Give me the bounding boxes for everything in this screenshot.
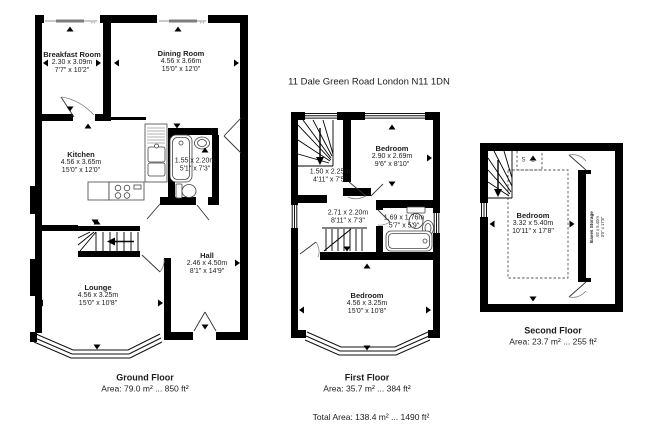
- room-name: Bedroom: [512, 211, 554, 220]
- room-imperial: 3'0" x 17'8": [600, 211, 605, 243]
- stove-icon: [88, 182, 144, 200]
- property-address: 11 Dale Green Road London N11 1DN: [288, 76, 450, 87]
- room-imperial: 4'11" x 7'5": [310, 177, 350, 185]
- room-name: Eaves Storage: [589, 211, 595, 243]
- skylight-label: S L: [521, 157, 536, 164]
- window-slide-icon: ↔: [199, 19, 206, 26]
- room-label-bedroom-rear: Bedroom 2.90 x 2.69m 9'6" x 8'10": [372, 144, 412, 170]
- room-metric: 4.56 x 3.66m: [158, 58, 205, 66]
- room-metric: 2.90 x 2.69m: [372, 153, 412, 161]
- room-label-hall: Hall 2.46 x 4.50m 8'1" x 14'9": [187, 251, 227, 277]
- window-slide-icon: ↔: [90, 19, 97, 26]
- room-metric: 1.55 x 2.20m: [175, 158, 215, 166]
- first-floor-caption: First Floor Area: 35.7 m² ... 384 ft²: [323, 373, 410, 394]
- room-metric: 1.69 x 1.76m: [384, 215, 424, 223]
- room-imperial: 15'0" x 10'8": [78, 301, 118, 309]
- room-label-first-bathroom: 1.69 x 1.76m 5'7" x 5'9": [384, 215, 424, 232]
- room-metric: 4.56 x 3.25m: [78, 292, 118, 300]
- first-stairs-icon: [298, 120, 367, 251]
- floor-name: Ground Floor: [101, 373, 188, 384]
- room-imperial: 5'1" x 7'3": [175, 166, 215, 174]
- room-imperial: 8'1" x 14'9": [187, 269, 227, 277]
- room-metric: 1.50 x 2.25m: [310, 169, 350, 177]
- room-imperial: 15'0" x 12'0": [61, 168, 101, 176]
- room-label-breakfast: Breakfast Room 2.30 x 3.09m 7'7" x 10'2": [43, 50, 101, 76]
- room-metric: 2.30 x 3.09m: [43, 59, 101, 67]
- room-metric: 3.32 x 5.40m: [512, 220, 554, 228]
- room-imperial: 8'11" x 7'3": [328, 218, 368, 226]
- room-label-lounge: Lounge 4.56 x 3.25m 15'0" x 10'8": [78, 283, 118, 309]
- room-label-inner-room: 2.71 x 2.20m 8'11" x 7'3": [328, 210, 368, 227]
- room-name: Lounge: [78, 283, 118, 292]
- room-metric: 2.46 x 4.50m: [187, 260, 227, 268]
- room-label-landing: 1.50 x 2.25m 4'11" x 7'5": [310, 169, 350, 186]
- room-imperial: 9'6" x 8'10": [372, 162, 412, 170]
- second-windows: [482, 203, 487, 217]
- floor-area: Area: 79.0 m² ... 850 ft²: [101, 383, 188, 393]
- kitchen-sink-unit-icon: [145, 124, 167, 182]
- room-metric: 4.56 x 3.65m: [61, 159, 101, 167]
- second-floor-caption: Second Floor Area: 23.7 m² ... 255 ft²: [509, 326, 596, 347]
- bathtub-icon: [386, 231, 432, 251]
- toilet-icon: [176, 184, 196, 198]
- ground-floor-caption: Ground Floor Area: 79.0 m² ... 850 ft²: [101, 373, 188, 394]
- room-label-second-bedroom: Bedroom 3.32 x 5.40m 10'11" x 17'8": [512, 211, 554, 237]
- room-imperial: 15'0" x 12'0": [158, 67, 205, 75]
- room-name: Dining Room: [158, 49, 205, 58]
- total-area: Total Area: 138.4 m² ... 1490 ft²: [313, 412, 430, 422]
- room-label-ground-bathroom: 1.55 x 2.20m 5'1" x 7'3": [175, 158, 215, 175]
- floorplan-canvas: ↔ ↔: [0, 0, 650, 433]
- room-imperial: 15'0" x 10'8": [347, 309, 387, 317]
- room-imperial: 5'7" x 5'9": [384, 223, 424, 231]
- floor-name: First Floor: [323, 373, 410, 384]
- room-label-dining: Dining Room 4.56 x 3.66m 15'0" x 12'0": [158, 49, 205, 75]
- basin-icon: [195, 137, 210, 149]
- room-name: Kitchen: [61, 150, 101, 159]
- eaves-storage-label: Eaves Storage .92 x 5.40m 3'0" x 17'8": [589, 211, 605, 243]
- room-label-bedroom-front: Bedroom 4.56 x 3.25m 15'0" x 10'8": [347, 291, 387, 317]
- room-metric: 2.71 x 2.20m: [328, 210, 368, 218]
- room-label-kitchen: Kitchen 4.56 x 3.65m 15'0" x 12'0": [61, 150, 101, 176]
- floor-name: Second Floor: [509, 326, 596, 337]
- room-name: Hall: [187, 251, 227, 260]
- floor-area: Area: 23.7 m² ... 255 ft²: [509, 336, 596, 346]
- room-metric: 4.56 x 3.25m: [347, 300, 387, 308]
- floor-area: Area: 35.7 m² ... 384 ft²: [323, 383, 410, 393]
- room-name: Bedroom: [372, 144, 412, 153]
- room-name: Breakfast Room: [43, 50, 101, 59]
- ground-stairs-icon: [78, 232, 138, 251]
- room-imperial: 7'7" x 10'2": [43, 68, 101, 76]
- first-floor-plan: [291, 112, 440, 355]
- room-imperial: 10'11" x 17'8": [512, 229, 554, 237]
- room-name: Bedroom: [347, 291, 387, 300]
